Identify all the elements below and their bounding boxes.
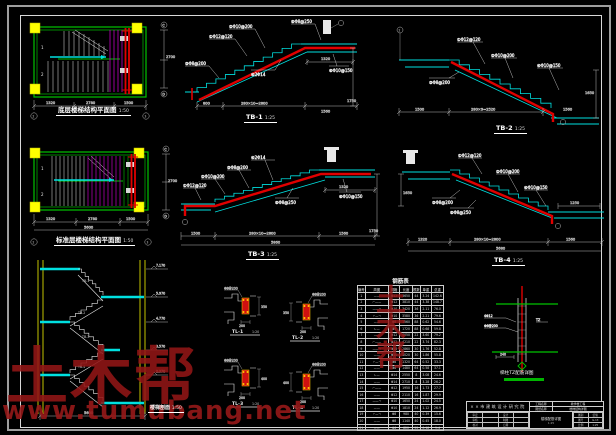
plan2-dims-right: C D 2700 bbox=[162, 146, 178, 219]
svg-text:280×10=2800: 280×10=2800 bbox=[249, 232, 276, 236]
svg-text:D: D bbox=[164, 215, 167, 219]
svg-text:②Φ10@200: ②Φ10@200 bbox=[491, 53, 515, 58]
svg-text:①Φ12@120: ①Φ12@120 bbox=[209, 34, 233, 39]
svg-text:⑤Φ8@250: ⑤Φ8@250 bbox=[291, 19, 312, 24]
svg-text:1500: 1500 bbox=[191, 232, 201, 236]
svg-text:200: 200 bbox=[239, 324, 245, 328]
svg-text:③Φ8@200: ③Φ8@200 bbox=[432, 200, 453, 205]
svg-text:1250: 1250 bbox=[570, 201, 580, 205]
svg-text:2: 2 bbox=[41, 72, 44, 77]
svg-text:2: 2 bbox=[41, 192, 44, 197]
svg-text:1750: 1750 bbox=[347, 99, 357, 103]
table-row: 21∟—Φ6820520.189.4 bbox=[358, 424, 444, 431]
column-header: 总重 bbox=[431, 286, 443, 293]
svg-text:②Φ10@200: ②Φ10@200 bbox=[201, 174, 225, 179]
svg-text:D: D bbox=[162, 93, 165, 97]
section-tb4: ①Φ12@120 ②Φ10@200 ③Φ8@200 ④Φ10@150 ⑤Φ8@2… bbox=[396, 150, 604, 262]
svg-text:C: C bbox=[162, 24, 165, 28]
svg-text:2: 2 bbox=[398, 29, 400, 33]
svg-text:TB-2: TB-2 bbox=[77, 311, 85, 315]
svg-text:3: 3 bbox=[146, 241, 148, 245]
tb2-dims: 1650 1500 280×9=2520 1560 bbox=[397, 70, 599, 118]
tl1-geometry bbox=[224, 294, 256, 324]
svg-text:①Φ12@120: ①Φ12@120 bbox=[183, 183, 207, 188]
svg-text:1560: 1560 bbox=[563, 108, 573, 112]
plan2-flight-numbers: 1 2 bbox=[41, 166, 44, 197]
svg-text:1320: 1320 bbox=[46, 217, 56, 221]
svg-text:③Φ8@200: ③Φ8@200 bbox=[227, 165, 248, 170]
svg-text:①Φ12@120: ①Φ12@120 bbox=[457, 37, 481, 42]
svg-text:400: 400 bbox=[261, 377, 267, 381]
signature-grid: 审定设计审核制图校对日期 bbox=[467, 412, 530, 428]
node-geometry bbox=[492, 286, 558, 372]
svg-text:⑤Φ8@250: ⑤Φ8@250 bbox=[275, 200, 296, 205]
svg-text:200: 200 bbox=[300, 330, 306, 334]
svg-text:5680: 5680 bbox=[496, 247, 506, 251]
svg-text:④Φ10@150: ④Φ10@150 bbox=[524, 185, 548, 190]
plan1-flight-numbers: 1 2 bbox=[41, 45, 44, 77]
svg-text:280×10=2800: 280×10=2800 bbox=[241, 102, 268, 106]
svg-text:2700: 2700 bbox=[166, 55, 176, 59]
project-name-value: 教学楼工程 bbox=[553, 402, 603, 406]
svg-text:1320: 1320 bbox=[418, 238, 428, 242]
svg-text:1320: 1320 bbox=[46, 101, 56, 105]
design-institute: ××市建筑设计研究院 bbox=[467, 402, 530, 411]
svg-text:Φ6@200: Φ6@200 bbox=[484, 324, 498, 328]
svg-text:⑥Φ10@150: ⑥Φ10@150 bbox=[329, 68, 353, 73]
svg-text:1650: 1650 bbox=[403, 191, 413, 195]
svg-text:③Φ8@200: ③Φ8@200 bbox=[429, 80, 450, 85]
detail-tl2: Φ8@200 350 200 TL-2 1:20 bbox=[282, 292, 330, 344]
sheet-name-value: 楼梯结构详图 bbox=[553, 407, 603, 411]
svg-text:350: 350 bbox=[283, 311, 289, 315]
svg-text:2: 2 bbox=[32, 241, 34, 245]
tb4-title: TB-4 1:25 bbox=[492, 256, 525, 266]
node-detail-underline bbox=[504, 378, 544, 381]
svg-text:800: 800 bbox=[203, 102, 211, 106]
sheet-number-grid: 图别结施图号G-13比例1:25 bbox=[573, 412, 603, 428]
tb4-callouts: ①Φ12@120 ②Φ10@200 ③Φ8@200 ④Φ10@150 ⑤Φ8@2… bbox=[432, 153, 548, 215]
svg-text:1650: 1650 bbox=[585, 91, 595, 95]
tb1-stair bbox=[185, 20, 357, 102]
svg-text:1:20: 1:20 bbox=[252, 330, 259, 334]
svg-text:TB-1: TB-1 bbox=[81, 279, 89, 283]
svg-text:1:20: 1:20 bbox=[312, 336, 319, 340]
svg-text:2: 2 bbox=[32, 115, 34, 119]
plan1-dims-right: C D 2700 bbox=[160, 22, 176, 97]
svg-text:350: 350 bbox=[261, 305, 267, 309]
sheet-name-label: 图纸名称 bbox=[530, 407, 553, 411]
node-detail-title: 梯柱TZ配筋详图 bbox=[500, 370, 534, 376]
tl1-label: TL-1 bbox=[232, 329, 243, 335]
svg-text:280×10=2800: 280×10=2800 bbox=[474, 238, 501, 242]
column-header: 编号 bbox=[358, 286, 366, 293]
tl2-label: TL-2 bbox=[292, 335, 303, 341]
svg-text:2780: 2780 bbox=[88, 217, 98, 221]
svg-text:5860: 5860 bbox=[271, 241, 281, 245]
svg-text:④2Φ14: ④2Φ14 bbox=[251, 72, 266, 77]
svg-text:1750: 1750 bbox=[369, 229, 379, 233]
tb2-title: TB-2 1:25 bbox=[494, 124, 527, 134]
svg-text:1:20: 1:20 bbox=[312, 406, 319, 410]
tl3-geometry bbox=[224, 366, 256, 396]
svg-text:②Φ10@200: ②Φ10@200 bbox=[496, 169, 520, 174]
svg-text:Φ8@200: Φ8@200 bbox=[312, 292, 326, 296]
cad-sheet: 1 2 1320 2780 1500 2 3 C D 2700 底层楼梯结构 bbox=[0, 0, 616, 435]
section-tb3: ①Φ12@120 ②Φ10@200 ③Φ8@200 ④2Φ14 ⑤Φ8@250 … bbox=[181, 146, 381, 252]
title-block: ××市建筑设计研究院 工程名称 教学楼工程 图纸名称 楼梯结构详图 审定设计审核… bbox=[466, 401, 604, 429]
svg-text:400: 400 bbox=[283, 381, 289, 385]
svg-text:7.170: 7.170 bbox=[156, 264, 165, 268]
tb3-title: TB-3 1:25 bbox=[246, 250, 279, 260]
section-tb1: ①Φ12@120 ②Φ10@200 ③Φ8@200 ④2Φ14 ⑤Φ8@250 … bbox=[183, 14, 361, 114]
tb4-stair bbox=[402, 150, 604, 229]
svg-text:4Φ12: 4Φ12 bbox=[484, 314, 493, 318]
svg-text:1320: 1320 bbox=[321, 57, 331, 61]
node-dims: 240 bbox=[496, 353, 514, 360]
node-detail: 4Φ12 Φ6@200 TZ 240 bbox=[480, 280, 600, 380]
svg-text:1560: 1560 bbox=[566, 238, 576, 242]
table-row: 校对日期 bbox=[468, 423, 529, 428]
svg-text:④Φ10@150: ④Φ10@150 bbox=[537, 63, 561, 68]
svg-text:5600: 5600 bbox=[84, 226, 94, 230]
svg-text:1: 1 bbox=[41, 45, 44, 50]
plan2-title: 标准层楼梯结构平面图 1:50 bbox=[54, 234, 135, 246]
svg-text:1560: 1560 bbox=[339, 232, 349, 236]
svg-text:C: C bbox=[164, 148, 167, 152]
tb2-callouts: ①Φ12@120 ②Φ10@200 ③Φ8@200 ④Φ10@150 bbox=[429, 37, 563, 90]
tb3-callouts: ①Φ12@120 ②Φ10@200 ③Φ8@200 ④2Φ14 ⑤Φ8@250 … bbox=[183, 155, 363, 205]
svg-text:4.770: 4.770 bbox=[156, 317, 165, 321]
tb4-dims: 1650 1250 1320 280×10=2800 1560 5680 bbox=[398, 174, 604, 251]
svg-text:TB-3: TB-3 bbox=[81, 335, 89, 339]
plan1-title: 底层楼梯结构平面图 1:50 bbox=[56, 104, 131, 116]
column-header: 单重 bbox=[420, 286, 431, 293]
elevation-title: 楼梯剖面 1:50 bbox=[148, 404, 184, 413]
tb3-dims: 1320 1750 1500 280×10=2800 1560 5860 bbox=[181, 174, 380, 245]
svg-text:③Φ8@200: ③Φ8@200 bbox=[185, 61, 206, 66]
svg-text:280×9=2520: 280×9=2520 bbox=[471, 108, 496, 112]
svg-text:1500: 1500 bbox=[126, 217, 136, 221]
svg-text:④2Φ14: ④2Φ14 bbox=[251, 155, 266, 160]
svg-text:Φ8@200: Φ8@200 bbox=[224, 358, 238, 362]
tb1-title: TB-1 1:25 bbox=[244, 113, 277, 123]
svg-text:2700: 2700 bbox=[168, 179, 178, 183]
section-tb2: 2 ①Φ12@120 ②Φ10@200 ③Φ8@200 ④Φ10@150 165… bbox=[393, 14, 603, 126]
column-header: 根数 bbox=[413, 286, 421, 293]
svg-text:3: 3 bbox=[144, 115, 146, 119]
svg-text:Φ8@200: Φ8@200 bbox=[224, 286, 238, 290]
svg-text:②Φ10@200: ②Φ10@200 bbox=[229, 24, 253, 29]
svg-text:⑤Φ8@250: ⑤Φ8@250 bbox=[450, 210, 471, 215]
watermark-stamp: 土木帮 bbox=[372, 284, 402, 424]
plan1-run-arrow bbox=[50, 55, 106, 59]
svg-text:1320: 1320 bbox=[339, 185, 349, 189]
drawing-scale: 1:25 bbox=[548, 421, 554, 425]
svg-text:1560: 1560 bbox=[321, 110, 331, 114]
detail-tl1: Φ8@200 350 200 TL-1 1:20 bbox=[222, 286, 270, 338]
tl2-geometry bbox=[296, 300, 328, 330]
svg-text:TZ: TZ bbox=[535, 318, 541, 322]
table-row: 比例1:25 bbox=[574, 423, 603, 428]
plan1-treads bbox=[48, 30, 108, 92]
svg-text:1: 1 bbox=[41, 166, 44, 171]
plan2-dims-bottom: 1320 2780 1500 5600 bbox=[32, 214, 150, 230]
svg-text:5.970: 5.970 bbox=[156, 292, 165, 296]
svg-text:240: 240 bbox=[500, 353, 506, 357]
svg-text:⑥Φ10@150: ⑥Φ10@150 bbox=[339, 194, 363, 199]
svg-text:①Φ12@120: ①Φ12@120 bbox=[458, 153, 482, 158]
svg-text:1500: 1500 bbox=[415, 108, 425, 112]
svg-text:Φ8@200: Φ8@200 bbox=[312, 362, 326, 366]
node-callouts: 4Φ12 Φ6@200 TZ bbox=[484, 314, 548, 332]
project-name-label: 工程名称 bbox=[530, 402, 553, 406]
